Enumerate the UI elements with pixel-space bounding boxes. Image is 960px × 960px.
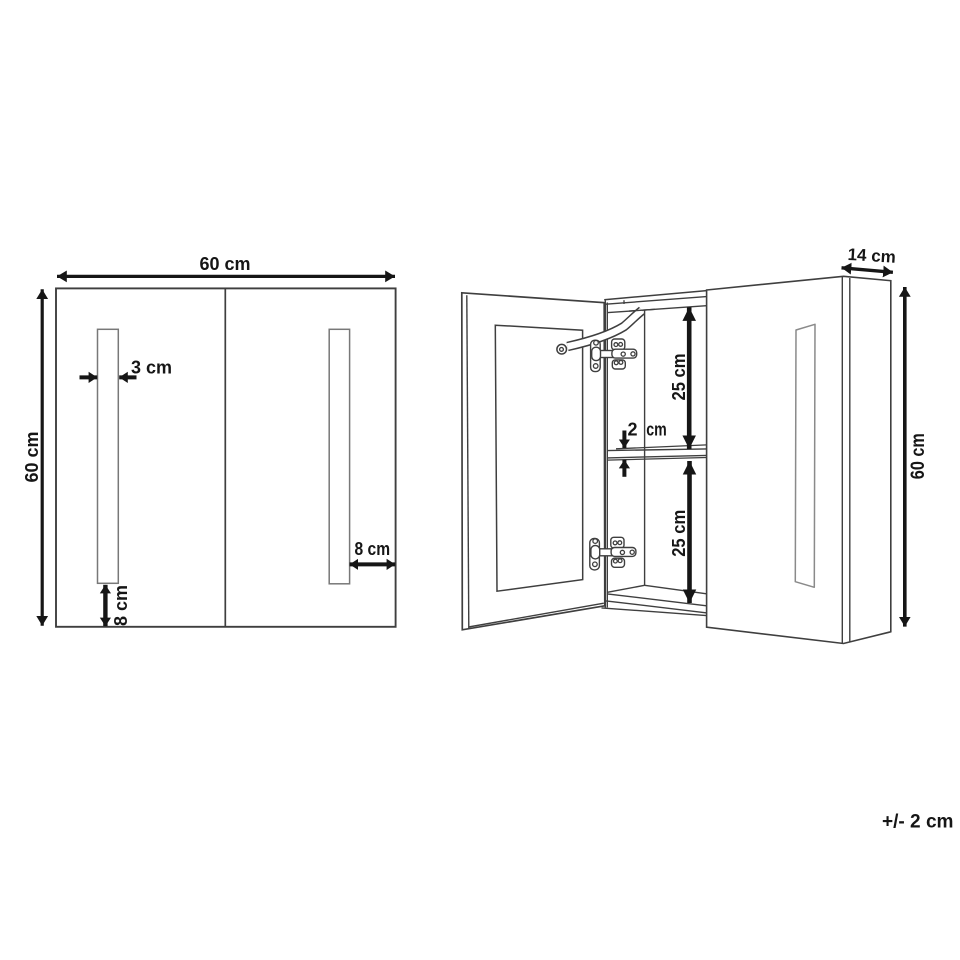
svg-text:60 cm: 60 cm (22, 431, 42, 482)
svg-text:14 cm: 14 cm (847, 245, 896, 267)
svg-text:60 cm: 60 cm (199, 254, 250, 274)
svg-text:cm: cm (646, 420, 667, 440)
svg-text:60 cm: 60 cm (908, 433, 929, 479)
svg-text:+/- 2 cm: +/- 2 cm (882, 812, 954, 833)
svg-text:2: 2 (628, 420, 638, 440)
svg-text:8 cm: 8 cm (111, 585, 131, 626)
svg-text:25 cm: 25 cm (668, 354, 689, 401)
svg-text:8 cm: 8 cm (355, 539, 391, 559)
svg-text:3 cm: 3 cm (131, 358, 172, 378)
svg-text:25 cm: 25 cm (668, 510, 689, 557)
